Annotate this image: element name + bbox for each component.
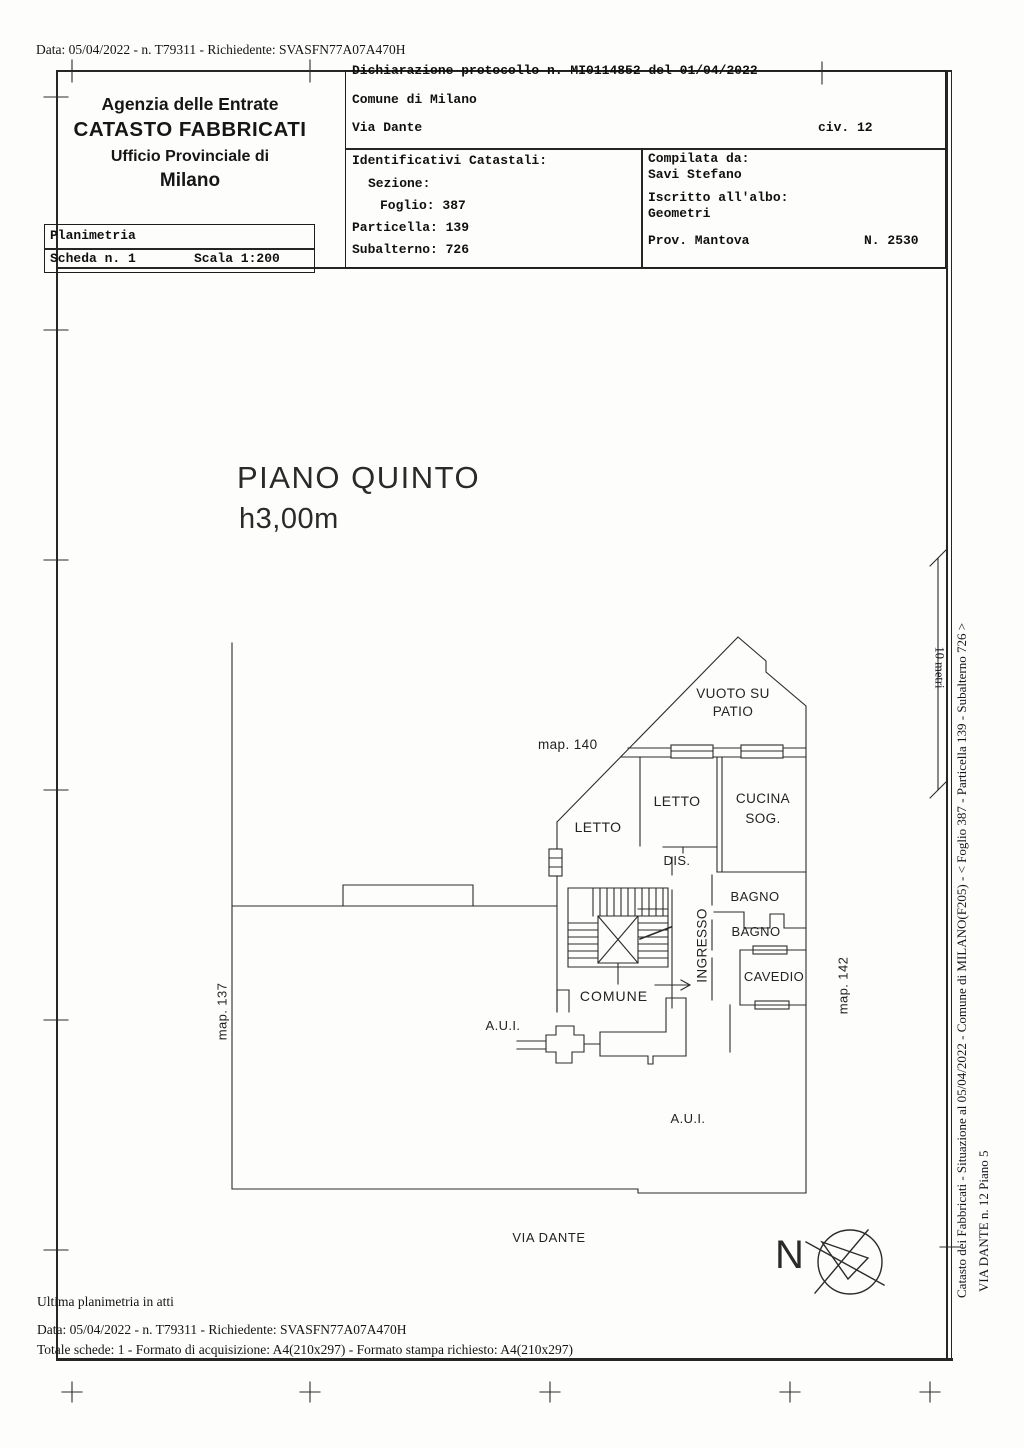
margin-address-line: VIA DANTE n. 12 Piano 5 — [976, 1132, 992, 1292]
north-compass — [806, 1230, 884, 1294]
apartment-walls — [517, 637, 806, 1193]
room-label-letto-left: LETTO — [563, 819, 633, 835]
footer-data: Data: 05/04/2022 - n. T79311 - Richieden… — [37, 1322, 406, 1338]
street-name-label: VIA DANTE — [489, 1230, 609, 1245]
map-140-label: map. 140 — [538, 737, 598, 752]
room-label-bagno-2: BAGNO — [716, 924, 796, 939]
room-label-ingresso: INGRESSO — [695, 901, 710, 991]
scale-bar-label: 10 metri — [932, 638, 947, 698]
room-label-cavedio: CAVEDIO — [724, 969, 824, 984]
cadastral-floorplan-sheet: Data: 05/04/2022 - n. T79311 - Richieden… — [0, 0, 1024, 1448]
map-137-label: map. 137 — [215, 977, 230, 1047]
room-label-sog: SOG. — [723, 811, 803, 826]
room-label-aui-right: A.U.I. — [653, 1111, 723, 1126]
room-label-letto-center: LETTO — [642, 793, 712, 809]
room-label-bagno-1: BAGNO — [715, 889, 795, 904]
north-letter: N — [775, 1233, 804, 1278]
room-label-vuoto-su: VUOTO SU — [688, 686, 778, 701]
room-label-aui-left: A.U.I. — [468, 1018, 538, 1033]
room-label-patio: PATIO — [688, 704, 778, 719]
room-label-cucina: CUCINA — [723, 791, 803, 806]
footer-ultima: Ultima planimetria in atti — [37, 1294, 174, 1310]
room-label-comune: COMUNE — [564, 988, 664, 1004]
footer-totale: Totale schede: 1 - Formato di acquisizio… — [37, 1342, 573, 1358]
elevator-shaft — [598, 916, 638, 963]
room-label-dis: DIS. — [647, 853, 707, 868]
margin-reference-line: Catasto dei Fabbricati - Situazione al 0… — [954, 598, 970, 1298]
registration-ticks — [44, 60, 960, 1402]
map-142-label: map. 142 — [836, 951, 851, 1021]
